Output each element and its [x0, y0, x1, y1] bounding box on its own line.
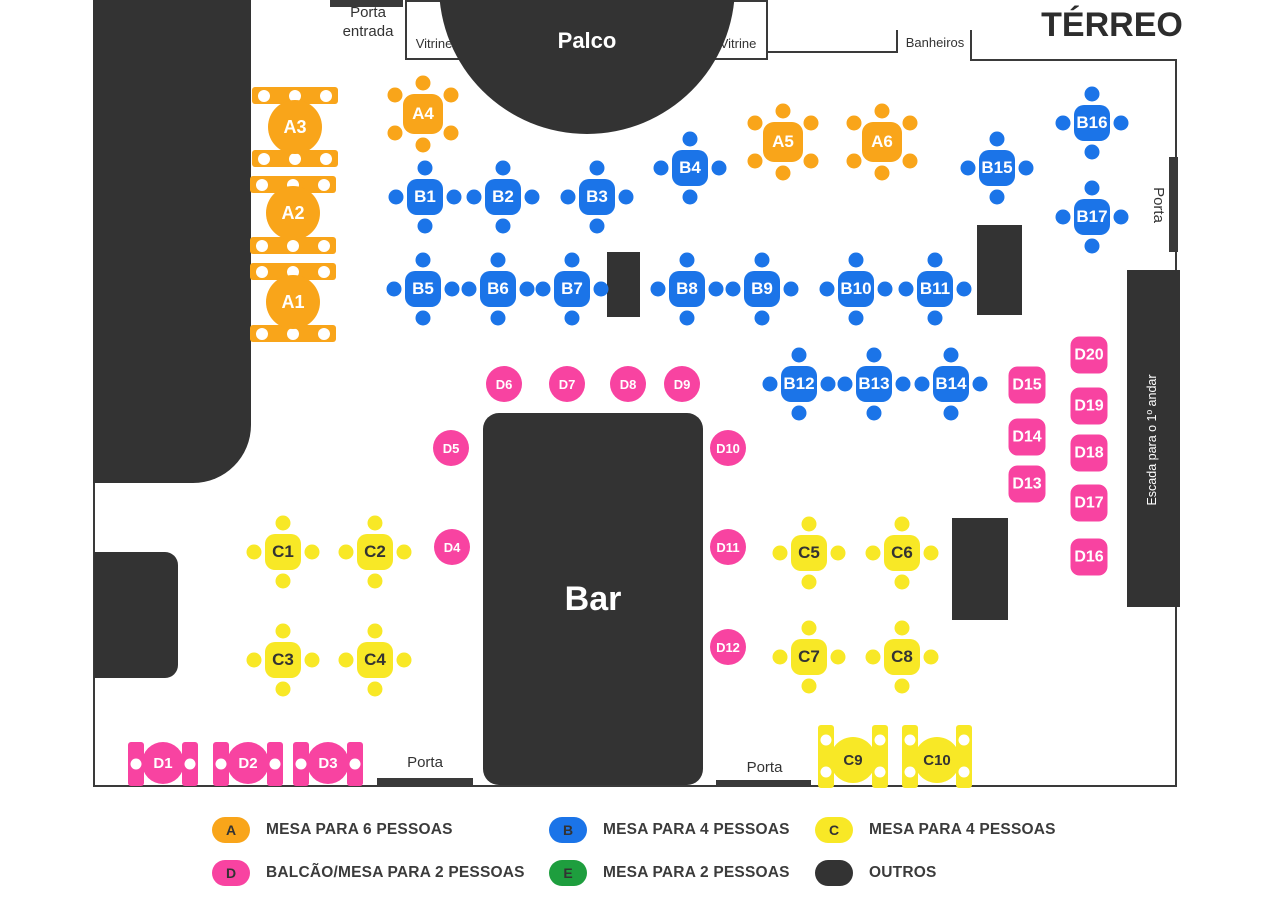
- seat-dot: [318, 240, 330, 252]
- chair: [990, 132, 1005, 147]
- seat-dot: [131, 759, 142, 770]
- seat-dot: [289, 153, 301, 165]
- chair: [726, 282, 741, 297]
- legend-letter-e: E: [563, 865, 572, 881]
- legend-label-b: MESA PARA 4 PESSOAS: [603, 821, 790, 839]
- table-top: D15: [1009, 367, 1046, 404]
- chair: [802, 517, 817, 532]
- table-top: B10: [838, 271, 874, 307]
- chair: [416, 76, 431, 91]
- chair: [276, 574, 291, 589]
- seat-dot: [318, 179, 330, 191]
- chair: [561, 190, 576, 205]
- table-top: C4: [357, 642, 393, 678]
- chair: [447, 190, 462, 205]
- chair: [594, 282, 609, 297]
- chair: [368, 574, 383, 589]
- seat-dot: [821, 735, 832, 746]
- chair: [990, 190, 1005, 205]
- pillar-right-top: [977, 225, 1022, 315]
- chair: [755, 253, 770, 268]
- legend-label-a: MESA PARA 6 PESSOAS: [266, 821, 453, 839]
- chair: [867, 348, 882, 363]
- legend-letter-a: A: [226, 822, 236, 838]
- chair: [776, 166, 791, 181]
- seat-dot: [185, 759, 196, 770]
- legend-swatch-b: B: [549, 817, 587, 843]
- chair: [651, 282, 666, 297]
- table-top: C8: [884, 639, 920, 675]
- seat-dot: [905, 735, 916, 746]
- legend-swatch-outros: [815, 860, 853, 886]
- chair: [276, 624, 291, 639]
- chair: [445, 282, 460, 297]
- chair: [847, 154, 862, 169]
- seat-dot: [905, 767, 916, 778]
- chair: [895, 621, 910, 636]
- table-top: D6: [486, 366, 522, 402]
- chair: [928, 253, 943, 268]
- seat-dot: [959, 735, 970, 746]
- wall-bottom: [93, 785, 1177, 787]
- chair: [416, 311, 431, 326]
- table-top: D7: [549, 366, 585, 402]
- table-top: D4: [434, 529, 470, 565]
- chair: [496, 161, 511, 176]
- seat-dot: [875, 735, 886, 746]
- chair: [804, 116, 819, 131]
- table-top: D1: [142, 742, 184, 784]
- chair: [896, 377, 911, 392]
- vitrine-right-label: Vitrine: [712, 36, 764, 51]
- chair: [416, 253, 431, 268]
- chair: [520, 282, 535, 297]
- legend-label-c: MESA PARA 4 PESSOAS: [869, 821, 1056, 839]
- table-top: A3: [268, 100, 322, 154]
- table-top: B16: [1074, 105, 1110, 141]
- chair: [847, 116, 862, 131]
- chair: [1085, 87, 1100, 102]
- chair: [536, 282, 551, 297]
- seat-dot: [258, 153, 270, 165]
- floor-plan-terreo: Palco Vitrine Vitrine Porta entrada Banh…: [0, 0, 1280, 904]
- table-top: D3: [307, 742, 349, 784]
- chair: [276, 516, 291, 531]
- chair: [389, 190, 404, 205]
- chair: [763, 377, 778, 392]
- chair: [247, 545, 262, 560]
- stairs-label: Escada para o 1º andar: [1145, 340, 1161, 540]
- table-top: C7: [791, 639, 827, 675]
- table-top: A5: [763, 122, 803, 162]
- chair: [590, 219, 605, 234]
- table-top: D16: [1071, 539, 1108, 576]
- legend-swatch-a: A: [212, 817, 250, 843]
- seat-dot: [216, 759, 227, 770]
- table-top: D5: [433, 430, 469, 466]
- chair: [1114, 210, 1129, 225]
- chair: [1056, 116, 1071, 131]
- legend-item-b: B MESA PARA 4 PESSOAS: [549, 817, 790, 843]
- table-top: B12: [781, 366, 817, 402]
- wall-top-left-segment: [768, 51, 898, 53]
- chair: [680, 311, 695, 326]
- structure-block-left: [93, 0, 251, 483]
- table-top: C1: [265, 534, 301, 570]
- seat-dot: [258, 90, 270, 102]
- palco-stage: [439, 0, 735, 134]
- pillar-center: [607, 252, 640, 317]
- table-top: B6: [480, 271, 516, 307]
- chair: [944, 348, 959, 363]
- chair: [866, 546, 881, 561]
- chair: [683, 190, 698, 205]
- seat-dot: [875, 767, 886, 778]
- seat-dot: [270, 759, 281, 770]
- chair: [820, 282, 835, 297]
- chair: [1085, 239, 1100, 254]
- chair: [895, 517, 910, 532]
- chair: [924, 546, 939, 561]
- door-right: [1169, 157, 1178, 252]
- chair: [802, 679, 817, 694]
- chair: [903, 154, 918, 169]
- table-top: B15: [979, 150, 1015, 186]
- chair: [784, 282, 799, 297]
- chair: [368, 516, 383, 531]
- table-top: C6: [884, 535, 920, 571]
- chair: [1085, 145, 1100, 160]
- table-top: C10: [914, 737, 960, 783]
- chair: [525, 190, 540, 205]
- table-top: B3: [579, 179, 615, 215]
- table-top: D11: [710, 529, 746, 565]
- palco-label: Palco: [537, 28, 637, 54]
- table-top: C2: [357, 534, 393, 570]
- table-top: A1: [266, 275, 320, 329]
- seat-dot: [256, 266, 268, 278]
- chair: [973, 377, 988, 392]
- seat-dot: [256, 328, 268, 340]
- legend-item-c: C MESA PARA 4 PESSOAS: [815, 817, 1056, 843]
- chair: [388, 88, 403, 103]
- chair: [397, 545, 412, 560]
- chair: [773, 546, 788, 561]
- table-top: A4: [403, 94, 443, 134]
- chair: [387, 282, 402, 297]
- chair: [849, 311, 864, 326]
- table-top: D14: [1009, 419, 1046, 456]
- table-top: B8: [669, 271, 705, 307]
- seat-dot: [318, 266, 330, 278]
- table-top: A6: [862, 122, 902, 162]
- chair: [895, 575, 910, 590]
- table-top: D10: [710, 430, 746, 466]
- table-top: C3: [265, 642, 301, 678]
- bench: [347, 742, 363, 786]
- table-top: B13: [856, 366, 892, 402]
- chair: [867, 406, 882, 421]
- legend-swatch-c: C: [815, 817, 853, 843]
- bar-label: Bar: [565, 580, 622, 619]
- chair: [444, 88, 459, 103]
- chair: [866, 650, 881, 665]
- chair: [773, 650, 788, 665]
- chair: [496, 219, 511, 234]
- chair: [1114, 116, 1129, 131]
- structure-block-left-small: [94, 552, 178, 678]
- chair: [339, 545, 354, 560]
- seat-dot: [287, 328, 299, 340]
- porta-bottom-right-label: Porta: [722, 759, 807, 776]
- chair: [849, 253, 864, 268]
- chair: [748, 154, 763, 169]
- chair: [709, 282, 724, 297]
- legend-label-e: MESA PARA 2 PESSOAS: [603, 864, 790, 882]
- seat-dot: [256, 179, 268, 191]
- chair: [397, 653, 412, 668]
- chair: [368, 624, 383, 639]
- chair: [792, 406, 807, 421]
- seat-dot: [959, 767, 970, 778]
- chair: [368, 682, 383, 697]
- seat-dot: [318, 328, 330, 340]
- chair: [924, 650, 939, 665]
- table-top: D18: [1071, 435, 1108, 472]
- porta-bottom-left-label: Porta: [380, 754, 470, 771]
- table-top: D2: [227, 742, 269, 784]
- chair: [619, 190, 634, 205]
- table-top: B7: [554, 271, 590, 307]
- chair: [895, 679, 910, 694]
- chair: [875, 104, 890, 119]
- chair: [1056, 210, 1071, 225]
- chair: [467, 190, 482, 205]
- door-bottom-right: [716, 780, 811, 787]
- table-top: C5: [791, 535, 827, 571]
- chair: [915, 377, 930, 392]
- chair: [418, 219, 433, 234]
- pillar-right-bottom: [952, 518, 1008, 620]
- table-top: B9: [744, 271, 780, 307]
- chair: [712, 161, 727, 176]
- chair: [1085, 181, 1100, 196]
- chair: [276, 682, 291, 697]
- chair: [802, 621, 817, 636]
- chair: [755, 311, 770, 326]
- chair: [748, 116, 763, 131]
- table-top: B14: [933, 366, 969, 402]
- chair: [875, 166, 890, 181]
- seat-dot: [350, 759, 361, 770]
- vitrine-left-label: Vitrine: [408, 36, 460, 51]
- bench: [267, 742, 283, 786]
- table-top: C9: [830, 737, 876, 783]
- chair: [878, 282, 893, 297]
- legend-item-d: D BALCÃO/MESA PARA 2 PESSOAS: [212, 860, 525, 886]
- chair: [838, 377, 853, 392]
- chair: [305, 545, 320, 560]
- chair: [565, 253, 580, 268]
- chair: [831, 546, 846, 561]
- chair: [899, 282, 914, 297]
- chair: [903, 116, 918, 131]
- table-top: B2: [485, 179, 521, 215]
- chair: [821, 377, 836, 392]
- chair: [247, 653, 262, 668]
- table-top: B5: [405, 271, 441, 307]
- chair: [654, 161, 669, 176]
- table-top: D17: [1071, 485, 1108, 522]
- chair: [776, 104, 791, 119]
- chair: [491, 311, 506, 326]
- chair: [944, 406, 959, 421]
- legend-label-outros: OUTROS: [869, 864, 937, 882]
- legend-swatch-e: E: [549, 860, 587, 886]
- chair: [418, 161, 433, 176]
- table-top: B11: [917, 271, 953, 307]
- chair: [683, 132, 698, 147]
- door-bottom-left: [377, 778, 473, 785]
- legend-item-e: E MESA PARA 2 PESSOAS: [549, 860, 790, 886]
- chair: [339, 653, 354, 668]
- bench: [182, 742, 198, 786]
- porta-entrada-label: Porta entrada: [327, 4, 409, 42]
- table-top: D20: [1071, 337, 1108, 374]
- chair: [804, 154, 819, 169]
- chair: [1019, 161, 1034, 176]
- chair: [961, 161, 976, 176]
- legend-label-d: BALCÃO/MESA PARA 2 PESSOAS: [266, 864, 525, 882]
- table-top: D8: [610, 366, 646, 402]
- seat-dot: [320, 153, 332, 165]
- table-top: D9: [664, 366, 700, 402]
- legend-swatch-d: D: [212, 860, 250, 886]
- seat-dot: [296, 759, 307, 770]
- chair: [305, 653, 320, 668]
- legend-letter-c: C: [829, 822, 839, 838]
- table-top: B17: [1074, 199, 1110, 235]
- chair: [792, 348, 807, 363]
- table-top: B4: [672, 150, 708, 186]
- legend-letter-d: D: [226, 865, 236, 881]
- table-top: D13: [1009, 466, 1046, 503]
- seat-dot: [256, 240, 268, 252]
- chair: [491, 253, 506, 268]
- seat-dot: [287, 240, 299, 252]
- chair: [831, 650, 846, 665]
- chair: [802, 575, 817, 590]
- chair: [928, 311, 943, 326]
- table-top: B1: [407, 179, 443, 215]
- legend-item-outros: OUTROS: [815, 860, 937, 886]
- banheiros-label: Banheiros: [898, 35, 972, 50]
- page-title: TÉRREO: [1038, 6, 1186, 45]
- chair: [590, 161, 605, 176]
- table-top: D19: [1071, 388, 1108, 425]
- bar-area: Bar: [483, 413, 703, 785]
- seat-dot: [821, 767, 832, 778]
- table-top: D12: [710, 629, 746, 665]
- wall-top-right-segment: [971, 59, 1177, 61]
- legend-letter-b: B: [563, 822, 573, 838]
- chair: [416, 138, 431, 153]
- seat-dot: [320, 90, 332, 102]
- chair: [444, 126, 459, 141]
- chair: [388, 126, 403, 141]
- chair: [957, 282, 972, 297]
- chair: [565, 311, 580, 326]
- table-top: A2: [266, 186, 320, 240]
- porta-right-label: Porta: [1151, 175, 1167, 235]
- chair: [680, 253, 695, 268]
- chair: [462, 282, 477, 297]
- legend-item-a: A MESA PARA 6 PESSOAS: [212, 817, 453, 843]
